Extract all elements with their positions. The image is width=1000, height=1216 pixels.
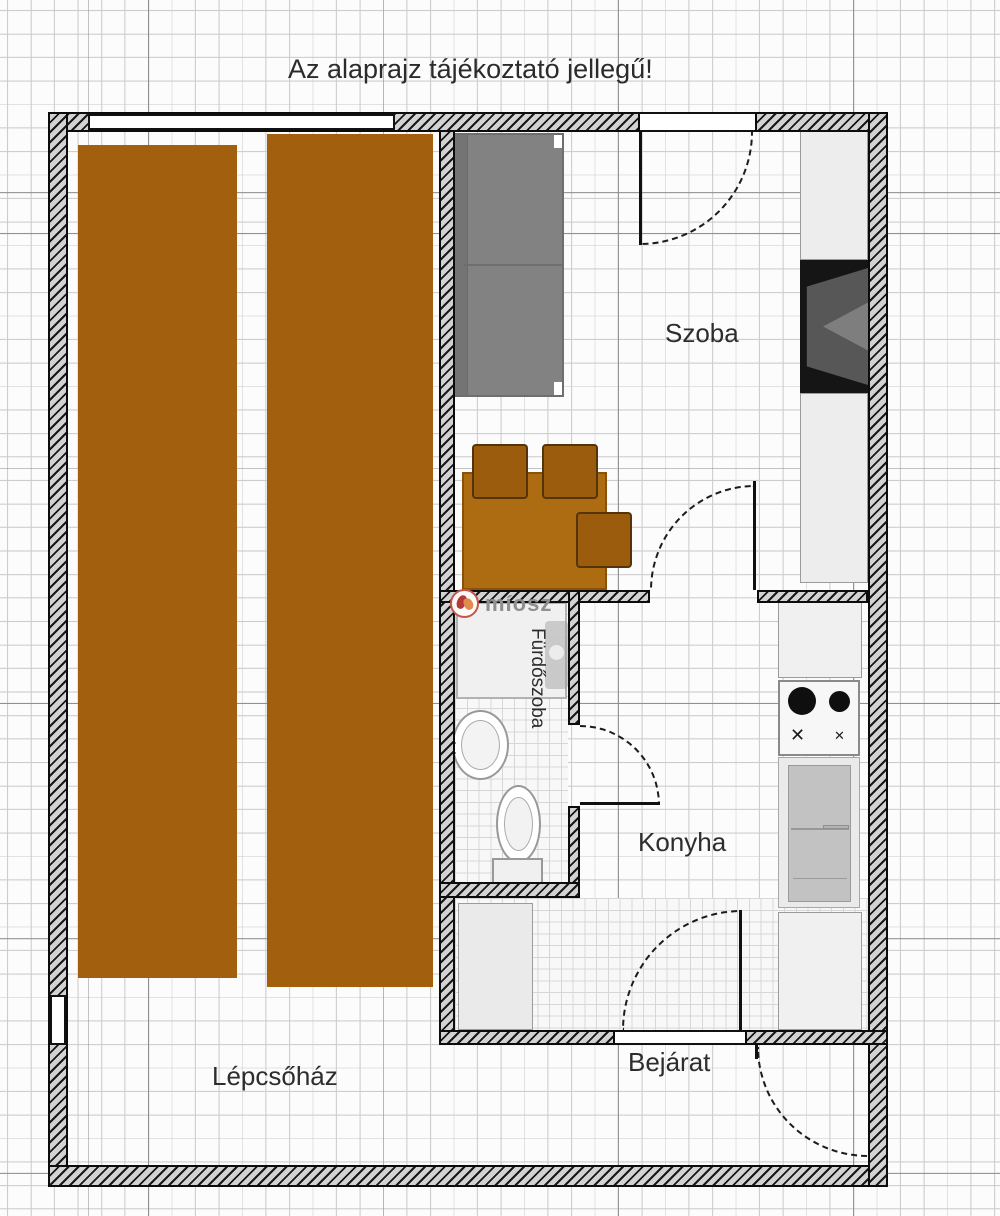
fridge [778,757,860,908]
hall-wardrobe [458,903,533,1030]
chair [542,444,598,499]
wall-bottom [48,1165,888,1187]
door-swing-arc [650,485,755,590]
door-leaf-entrance [739,910,742,1030]
kitchen-counter-lower [778,912,862,1030]
watermark-logo-icon [450,589,479,618]
door-swing-arc [640,132,753,245]
watermark: míosz [450,589,552,618]
fridge-door [788,765,851,902]
washing-machine [545,621,568,689]
door-opening-szoba-top [640,112,755,132]
kitchen-counter-upper [778,598,862,678]
stove-knob-icon: ✕ [834,729,845,742]
wardrobe-upper [800,130,868,260]
wall-apartment-bottom-west [439,1030,615,1045]
wall-apartment-bottom-east [745,1030,888,1045]
door-leaf-staircase [755,1045,758,1059]
room-label-szoba: Szoba [665,318,739,349]
door-leaf-bathroom [580,802,660,805]
plan-disclaimer-title: Az alaprajz tájékoztató jellegű! [288,54,653,85]
door-opening-entrance [615,1030,745,1045]
door-leaf-szoba-konyha [753,481,756,590]
chair [576,512,632,568]
wall-bathroom-south [439,882,580,898]
toilet-bowl-inner [504,797,533,851]
stove-knob-icon: ✕ [790,726,805,744]
room-label-konyha: Konyha [638,827,726,858]
wall-bathroom-east-upper [568,590,580,725]
fridge-lower-line [793,878,847,879]
floor-plan: ✕ ✕ [0,0,1000,1216]
wardrobe-lower [800,393,868,583]
room-label-bejarat: Bejárat [628,1047,710,1078]
fridge-handle [823,825,849,829]
wall-szoba-south-east [757,590,868,603]
room-label-furdoszoba: Fürdőszoba [526,628,548,728]
window-staircase-left [50,995,66,1045]
burner-large-icon [788,687,816,715]
room-label-lepcsohaz: Lépcsőház [212,1061,338,1092]
couch-cushion-corner-bottom [554,382,562,395]
couch [452,133,564,397]
washing-machine-drum-icon [549,645,564,660]
burner-small-icon [829,691,850,712]
tv-cabinet [800,260,868,393]
couch-cushion-corner-top [554,135,562,148]
chair [472,444,528,499]
stove: ✕ ✕ [778,680,860,756]
sink [452,710,509,780]
wall-bathroom-east-lower [568,806,580,888]
couch-seam [464,264,562,266]
wall-right [868,112,888,1187]
stairs-flight-right [267,134,433,987]
window-staircase-top [88,114,395,130]
watermark-text: míosz [485,591,552,617]
door-swing-arc [580,725,660,805]
sink-basin [461,720,500,770]
door-leaf-szoba-top [639,132,642,245]
toilet-bowl [496,785,541,863]
door-swing-arc [757,1047,868,1157]
stairs-flight-left [78,145,237,978]
